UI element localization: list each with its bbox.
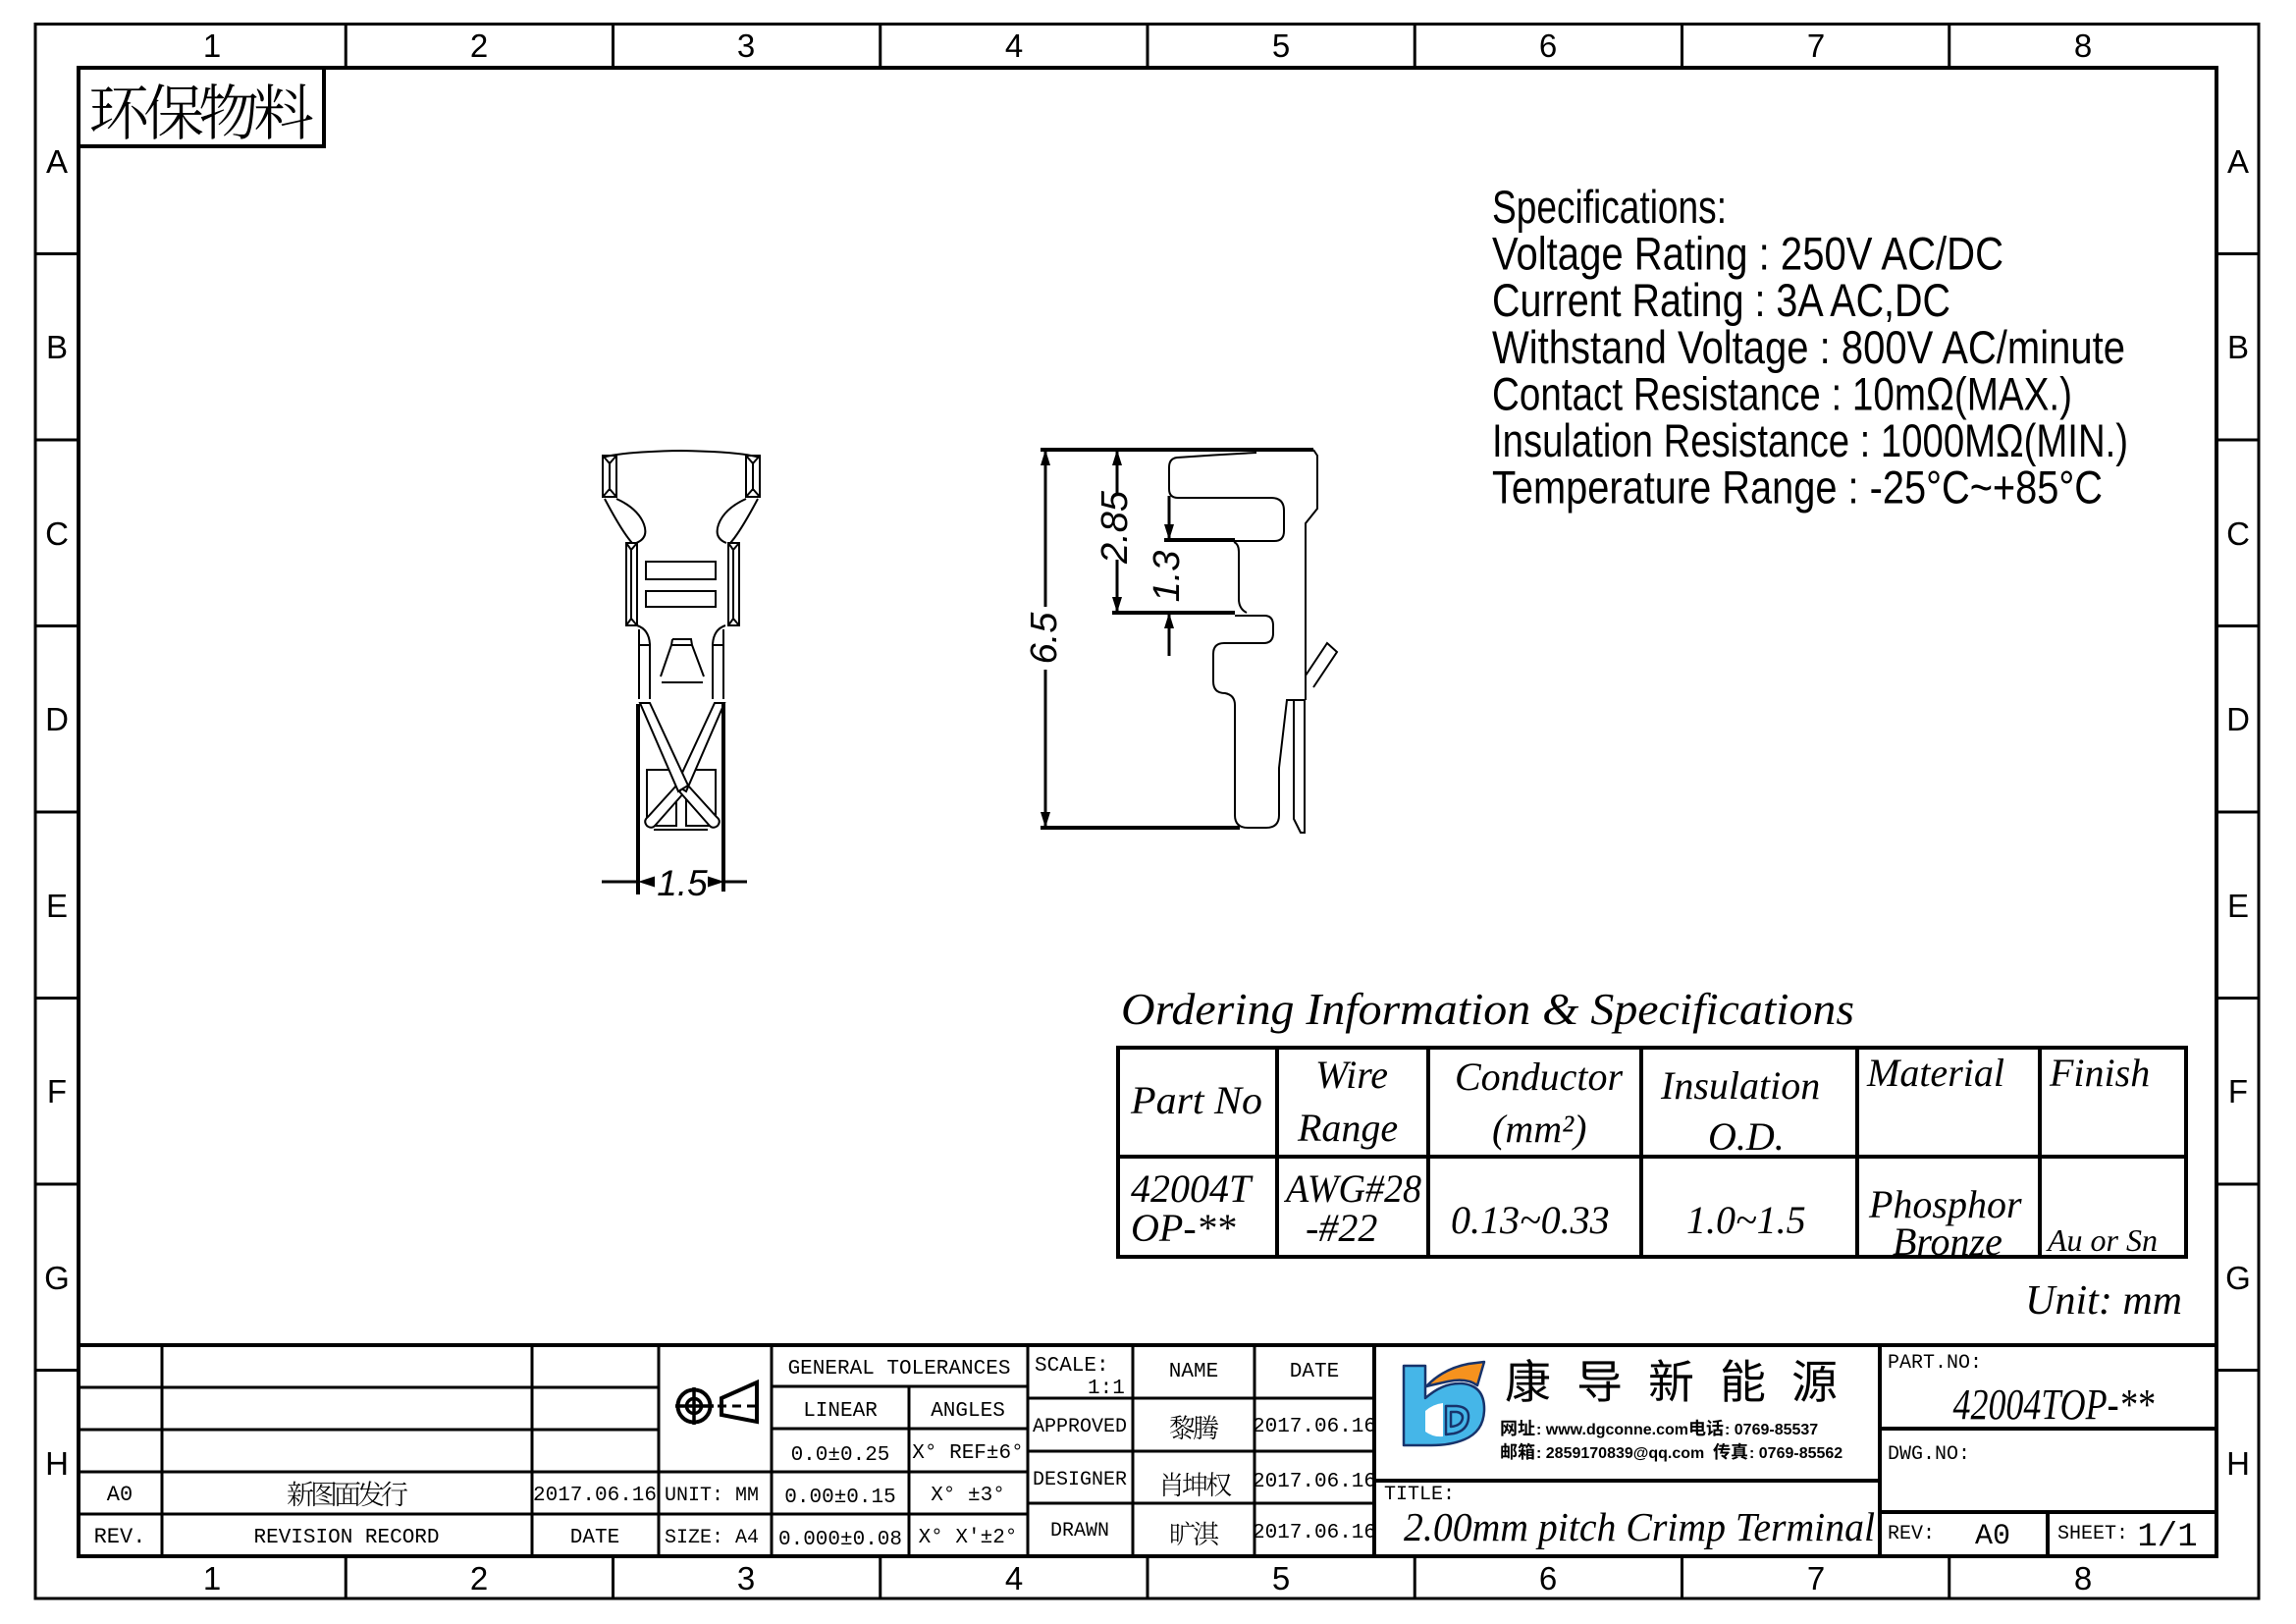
svg-text:42004TOP-**: 42004TOP-** [1953, 1380, 2155, 1429]
svg-text:2017.06.16: 2017.06.16 [533, 1485, 657, 1507]
svg-text:8: 8 [2074, 1560, 2092, 1597]
svg-text:2.85: 2.85 [1095, 490, 1136, 565]
svg-text:H: H [45, 1445, 69, 1482]
svg-text:: www.dgconne.com: : www.dgconne.com [1536, 1422, 1688, 1438]
svg-text:5: 5 [1272, 27, 1290, 64]
svg-text:Specifications:: Specifications: [1492, 181, 1727, 233]
svg-text:C: C [45, 515, 69, 552]
svg-text:0.00±0.15: 0.00±0.15 [784, 1487, 895, 1509]
svg-text:Bronze: Bronze [1893, 1219, 2002, 1264]
svg-text:1.5: 1.5 [657, 863, 708, 903]
svg-text:42004T: 42004T [1131, 1166, 1254, 1211]
svg-text:Withstand Voltage : 800V A: Withstand Voltage : 800V AC/minute [1492, 321, 2125, 373]
svg-text:E: E [46, 888, 68, 924]
svg-text:6: 6 [1539, 1560, 1557, 1597]
svg-text:0.0±0.25: 0.0±0.25 [791, 1444, 890, 1467]
svg-text:X° X'±2°: X° X'±2° [919, 1527, 1018, 1549]
svg-text:Au or Sn: Au or Sn [2046, 1222, 2158, 1258]
svg-text:Contact Resistance : 10mΩ(M: Contact Resistance : 10mΩ(MAX.) [1492, 367, 2072, 419]
svg-text:SCALE:: SCALE: [1035, 1355, 1109, 1378]
svg-text:Material: Material [1866, 1051, 2004, 1095]
svg-text:TITLE:: TITLE: [1384, 1484, 1455, 1506]
svg-text:-#22: -#22 [1306, 1206, 1377, 1250]
svg-text:: 2859170839@qq.com: : 2859170839@qq.com [1536, 1445, 1704, 1462]
svg-text:3: 3 [737, 1560, 755, 1597]
svg-text:Wire: Wire [1315, 1053, 1388, 1097]
svg-text:Conductor: Conductor [1455, 1055, 1624, 1099]
svg-text:Current Rating : 3A AC,DC: Current Rating : 3A AC,DC [1492, 274, 1950, 326]
svg-text:REV:: REV: [1888, 1523, 1935, 1545]
svg-text:DESIGNER: DESIGNER [1033, 1469, 1127, 1491]
svg-text:F: F [47, 1073, 67, 1110]
svg-text:Part No: Part No [1130, 1078, 1262, 1122]
svg-text:: 0769-85562: : 0769-85562 [1749, 1445, 1842, 1462]
svg-text:Voltage Rating : 250V AC/D: Voltage Rating : 250V AC/DC [1492, 228, 2003, 280]
svg-text:A0: A0 [107, 1483, 133, 1507]
svg-text:2: 2 [470, 27, 488, 64]
svg-text:2017.06.16: 2017.06.16 [1253, 1416, 1376, 1438]
svg-text:: 0769-85537: : 0769-85537 [1725, 1422, 1818, 1438]
svg-text:1.3: 1.3 [1147, 551, 1188, 603]
svg-text:SIZE: A4: SIZE: A4 [665, 1527, 759, 1549]
svg-text:D: D [2226, 701, 2250, 737]
svg-text:NAME: NAME [1169, 1361, 1218, 1383]
svg-text:X° REF±6°: X° REF±6° [912, 1442, 1023, 1465]
svg-text:Insulation Resistance : 100: Insulation Resistance : 1000MΩ(MIN.) [1492, 414, 2128, 466]
svg-text:REV.: REV. [94, 1525, 146, 1549]
svg-text:Ordering Information & Spec: Ordering Information & Specifications [1121, 984, 1854, 1034]
svg-text:1.0~1.5: 1.0~1.5 [1686, 1198, 1806, 1242]
svg-text:C: C [2226, 515, 2250, 552]
svg-text:8: 8 [2074, 27, 2092, 64]
svg-text:GENERAL TOLERANCES: GENERAL TOLERANCES [788, 1358, 1011, 1380]
svg-text:2: 2 [470, 1560, 488, 1597]
svg-text:0.000±0.08: 0.000±0.08 [778, 1529, 902, 1551]
svg-text:1:1: 1:1 [1088, 1378, 1125, 1400]
svg-text:2017.06.16: 2017.06.16 [1253, 1471, 1376, 1493]
svg-text:OP-**: OP-** [1131, 1206, 1236, 1250]
svg-text:7: 7 [1807, 1560, 1825, 1597]
svg-text:REVISION RECORD: REVISION RECORD [253, 1527, 439, 1549]
svg-text:(mm²): (mm²) [1492, 1107, 1586, 1151]
svg-text:DATE: DATE [570, 1527, 619, 1549]
svg-text:AWG#28: AWG#28 [1283, 1166, 1421, 1211]
svg-text:B: B [46, 329, 68, 365]
svg-text:PART.NO:: PART.NO: [1888, 1352, 1982, 1375]
svg-text:6.5: 6.5 [1024, 612, 1065, 665]
svg-text:4: 4 [1005, 27, 1023, 64]
svg-text:O.D.: O.D. [1708, 1114, 1785, 1159]
svg-text:B: B [2227, 329, 2249, 365]
svg-text:1: 1 [203, 1560, 221, 1597]
svg-text:G: G [44, 1260, 70, 1296]
svg-text:DATE: DATE [1290, 1361, 1339, 1383]
svg-text:SHEET:: SHEET: [2057, 1523, 2128, 1545]
svg-text:A: A [2227, 143, 2249, 180]
svg-text:G: G [2225, 1260, 2251, 1296]
svg-text:7: 7 [1807, 27, 1825, 64]
svg-text:ANGLES: ANGLES [931, 1400, 1005, 1423]
svg-text:Unit: mm: Unit: mm [2025, 1278, 2182, 1324]
svg-text:E: E [2227, 888, 2249, 924]
svg-text:Finish: Finish [2049, 1051, 2150, 1095]
svg-text:1: 1 [203, 27, 221, 64]
svg-text:5: 5 [1272, 1560, 1290, 1597]
svg-text:DWG.NO:: DWG.NO: [1888, 1443, 1970, 1466]
svg-text:H: H [2226, 1445, 2250, 1482]
svg-text:UNIT: MM: UNIT: MM [665, 1485, 759, 1507]
svg-text:1/1: 1/1 [2137, 1519, 2197, 1556]
svg-text:APPROVED: APPROVED [1033, 1416, 1127, 1438]
svg-text:X° ±3°: X° ±3° [931, 1485, 1005, 1507]
svg-text:DRAWN: DRAWN [1050, 1520, 1109, 1543]
svg-text:D: D [45, 701, 69, 737]
svg-text:3: 3 [737, 27, 755, 64]
svg-text:4: 4 [1005, 1560, 1023, 1597]
svg-text:Temperature Range : -25°C~+: Temperature Range : -25°C~+85°C [1492, 461, 2103, 514]
svg-text:F: F [2228, 1073, 2248, 1110]
svg-text:Range: Range [1297, 1106, 1398, 1150]
svg-text:2017.06.16: 2017.06.16 [1253, 1522, 1376, 1544]
svg-text:2.00mm pitch Crimp Terminal: 2.00mm pitch Crimp Terminal [1404, 1504, 1875, 1549]
svg-text:6: 6 [1539, 27, 1557, 64]
svg-text:Insulation: Insulation [1660, 1063, 1820, 1108]
svg-text:LINEAR: LINEAR [803, 1400, 878, 1423]
svg-text:A0: A0 [1975, 1520, 2010, 1553]
svg-text:0.13~0.33: 0.13~0.33 [1451, 1198, 1610, 1242]
svg-text:A: A [46, 143, 68, 180]
